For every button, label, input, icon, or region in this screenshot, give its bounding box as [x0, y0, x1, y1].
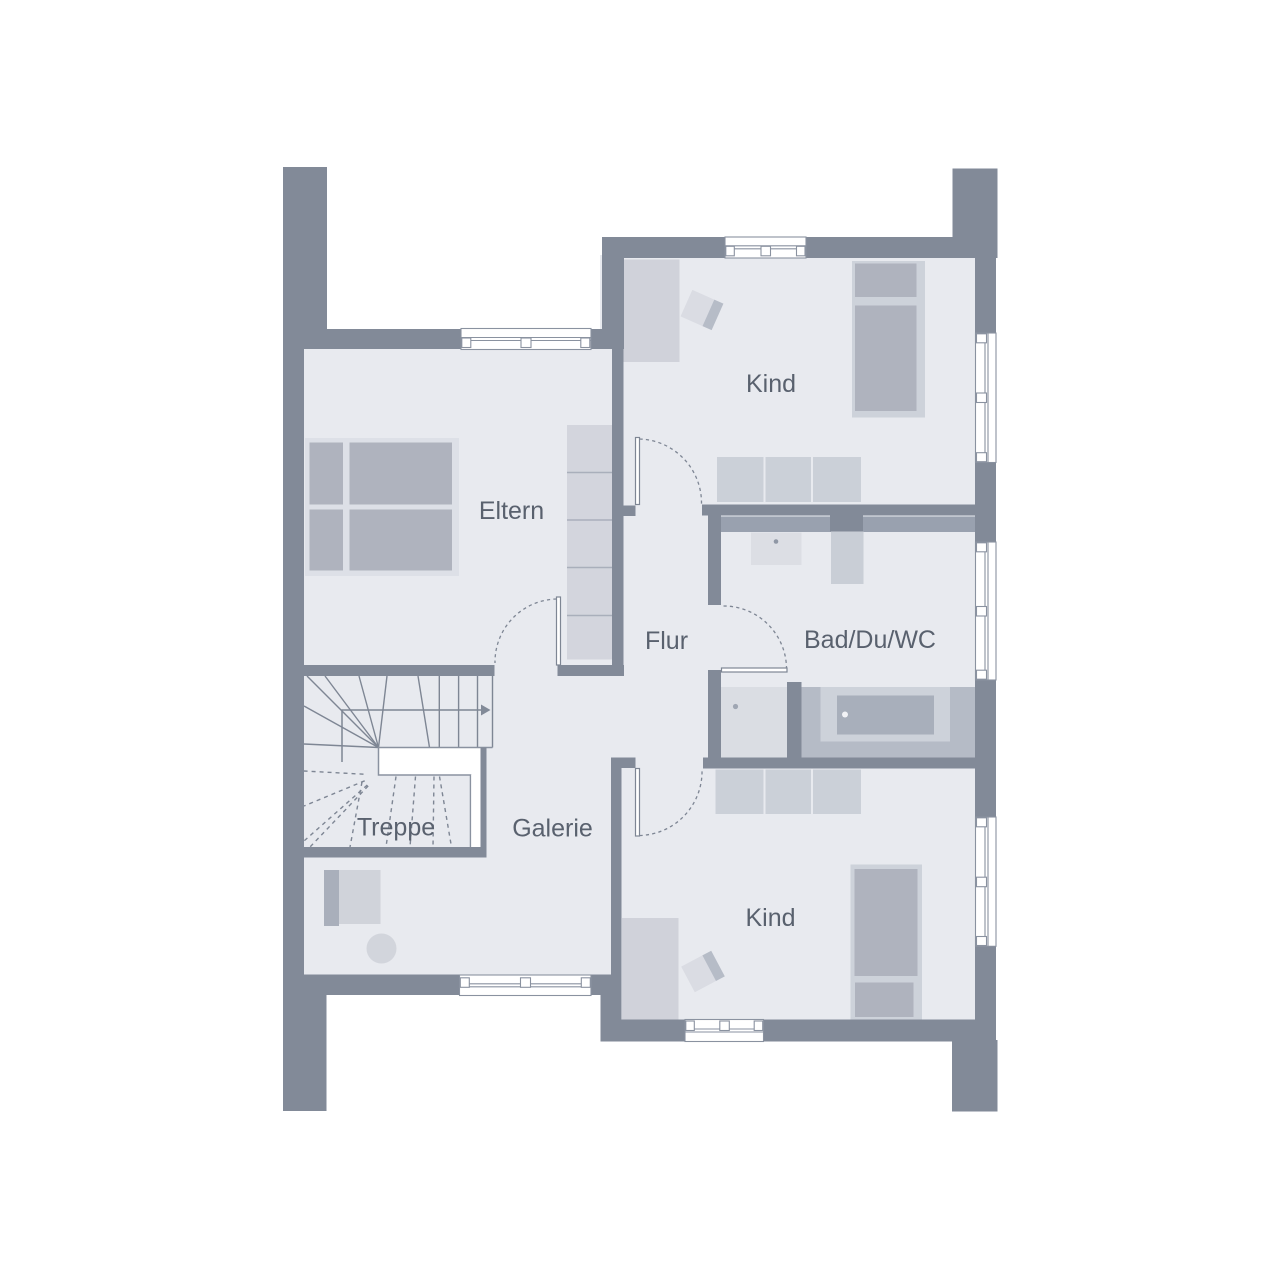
svg-text:Bad/Du/WC: Bad/Du/WC — [804, 626, 936, 654]
svg-text:Kind: Kind — [746, 370, 796, 398]
svg-text:Treppe: Treppe — [357, 814, 435, 842]
svg-text:Kind: Kind — [745, 904, 795, 932]
svg-text:Eltern: Eltern — [479, 497, 544, 525]
svg-text:Flur: Flur — [645, 627, 688, 655]
svg-text:Galerie: Galerie — [512, 815, 593, 843]
